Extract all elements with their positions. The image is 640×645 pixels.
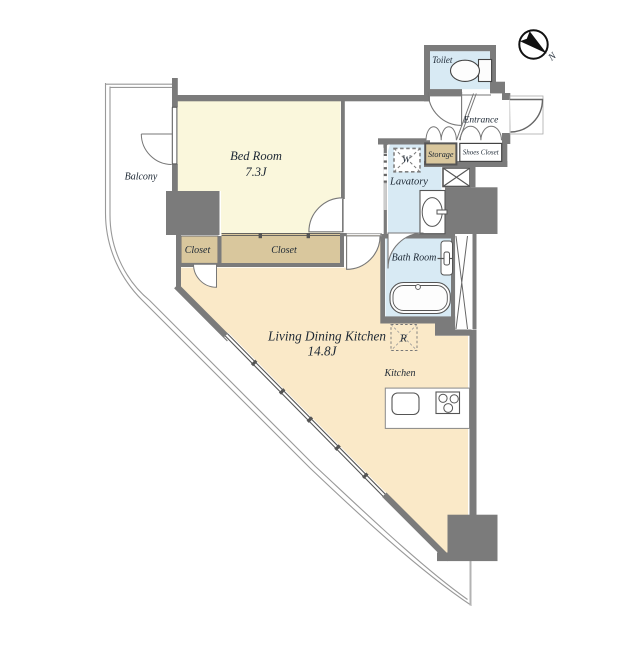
svg-text:Storage: Storage — [428, 150, 454, 159]
svg-text:Shoes Closet: Shoes Closet — [463, 149, 500, 157]
svg-text:Living Dining Kitchen: Living Dining Kitchen — [267, 329, 386, 344]
svg-text:Lavatory: Lavatory — [389, 176, 428, 187]
svg-text:Closet: Closet — [185, 245, 211, 256]
svg-text:14.8J: 14.8J — [308, 344, 338, 359]
svg-text:R: R — [399, 333, 407, 345]
svg-text:7.3J: 7.3J — [245, 165, 268, 179]
svg-text:Closet: Closet — [271, 245, 297, 256]
svg-text:Bed Room: Bed Room — [230, 149, 282, 163]
svg-text:Entrance: Entrance — [463, 116, 499, 126]
svg-text:Toilet: Toilet — [432, 55, 453, 65]
svg-text:Kitchen: Kitchen — [383, 368, 415, 379]
svg-text:Bath Room: Bath Room — [392, 253, 437, 264]
svg-text:Balcony: Balcony — [125, 172, 158, 183]
